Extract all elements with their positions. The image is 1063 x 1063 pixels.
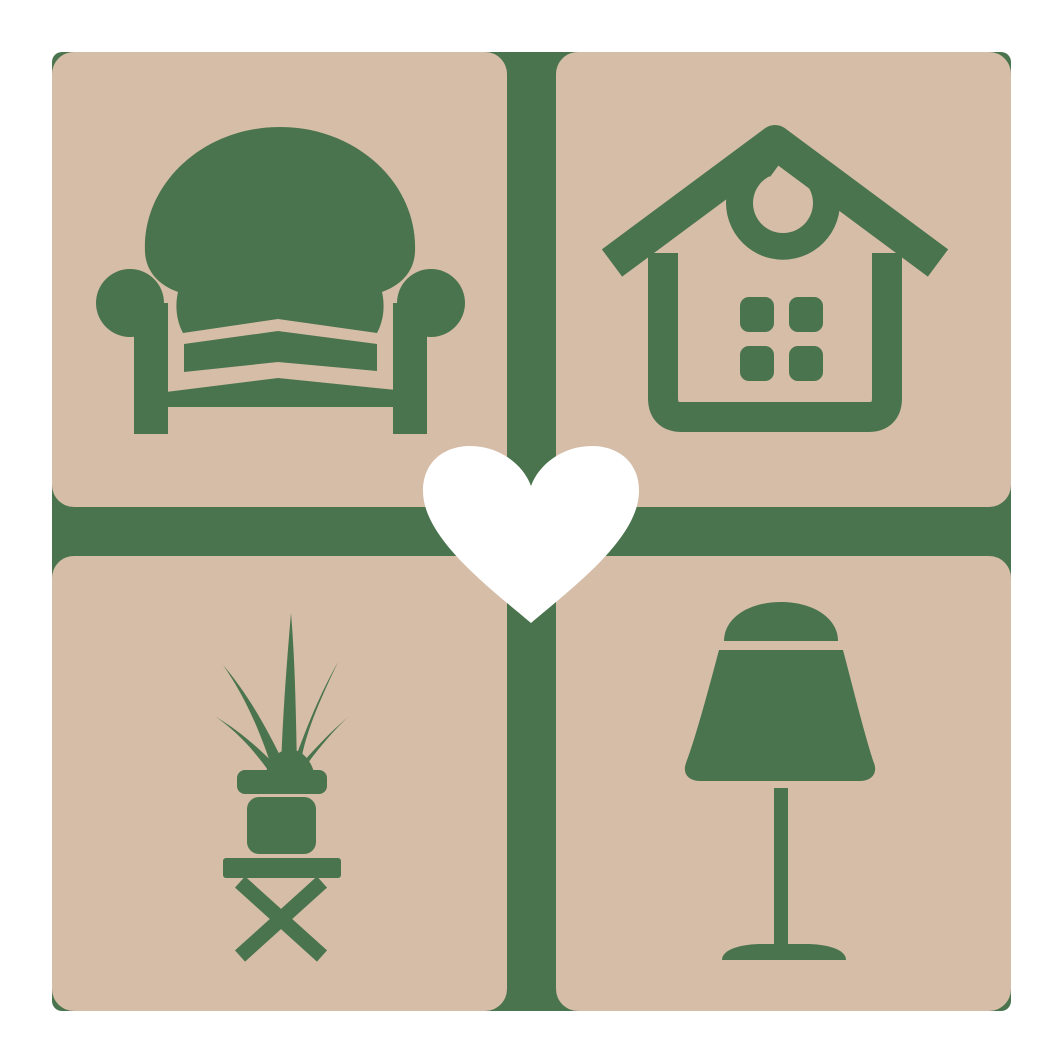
tile-top-right xyxy=(556,52,1011,507)
logo-canvas xyxy=(0,0,1063,1063)
logo-stage xyxy=(0,0,1063,1063)
